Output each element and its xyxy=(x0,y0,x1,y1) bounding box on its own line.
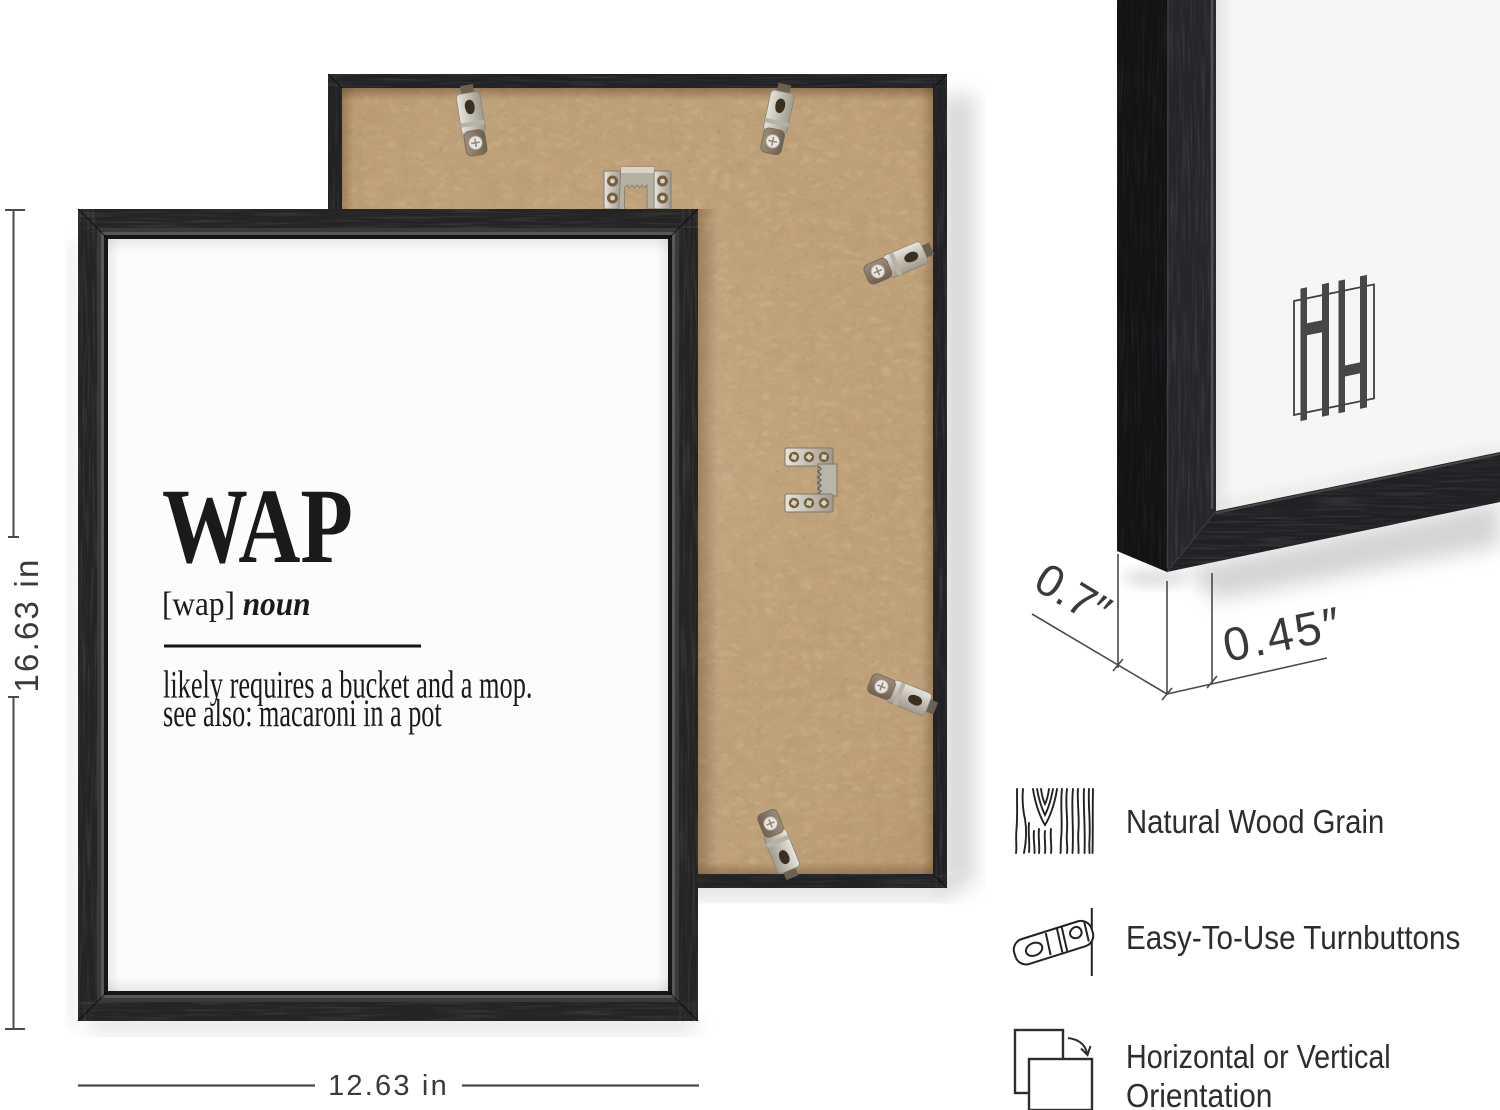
svg-text:Horizontal or Vertical: Horizontal or Vertical xyxy=(1126,1038,1391,1075)
svg-text:0.45″: 0.45″ xyxy=(1218,596,1347,672)
svg-text:WAP: WAP xyxy=(162,467,353,585)
svg-text:[wap] noun: [wap] noun xyxy=(162,586,311,623)
svg-text:12.63 in: 12.63 in xyxy=(328,1070,449,1102)
svg-text:Orientation: Orientation xyxy=(1126,1077,1272,1110)
svg-text:see also: macaroni in a pot: see also: macaroni in a pot xyxy=(163,692,442,735)
svg-text:16.63 in: 16.63 in xyxy=(8,557,45,692)
svg-text:Easy-To-Use Turnbuttons: Easy-To-Use Turnbuttons xyxy=(1126,920,1460,957)
svg-text:0.7″: 0.7″ xyxy=(1026,553,1120,637)
svg-text:Natural Wood Grain: Natural Wood Grain xyxy=(1126,803,1384,840)
